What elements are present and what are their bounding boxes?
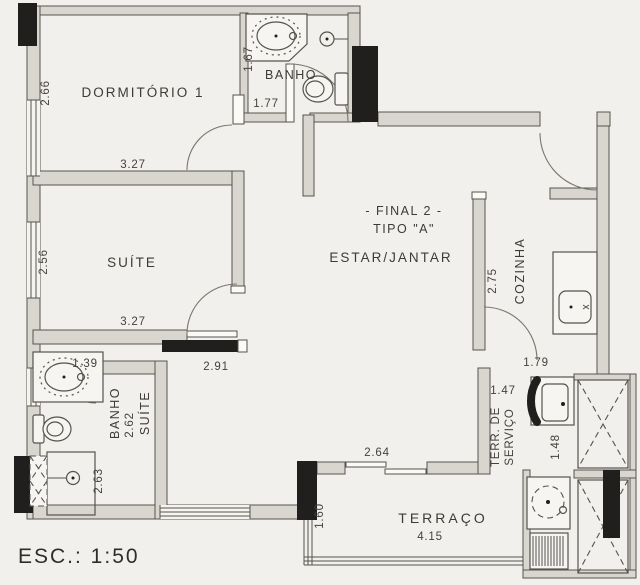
plan-subheading: TIPO "A"	[373, 222, 435, 236]
wall	[232, 171, 244, 287]
room-label-dormitorio1: DORMITÓRIO 1	[81, 85, 204, 100]
window-estar-bottom	[160, 505, 250, 519]
dim-banho-height: 1.67	[243, 46, 255, 72]
floor-plan: DORMITÓRIO 1 3.27 2.66 BANHO 1.67 1.77 S…	[0, 0, 640, 585]
room-label-servico-1: TERR. DE	[490, 407, 502, 467]
window-dormitorio1	[27, 100, 40, 176]
dim-terraco-width: 4.15	[417, 531, 443, 543]
room-label-servico-2: SERVIÇO	[504, 408, 516, 465]
kitchen-counter	[553, 252, 597, 334]
interior-walls	[33, 115, 486, 519]
dim-estar-height: 2.62	[124, 412, 136, 438]
wall	[33, 171, 235, 185]
shower-head-icon	[320, 32, 348, 46]
dim-estar-beam: 2.91	[203, 361, 229, 373]
washing-machine-icon	[527, 477, 570, 529]
column	[603, 470, 620, 538]
room-label-terraco: TERRAÇO	[398, 510, 487, 526]
wall-end-cap	[472, 192, 486, 199]
scale-label: ESC.: 1:50	[18, 545, 140, 568]
grille-icon	[530, 533, 568, 569]
beam-end-cap	[238, 340, 247, 352]
wall	[478, 368, 490, 474]
column	[352, 46, 378, 122]
wall-end-cap	[231, 286, 245, 293]
sliding-door-terraco	[346, 462, 426, 474]
column	[18, 3, 37, 46]
floor-plan-drawing: DORMITÓRIO 1 3.27 2.66 BANHO 1.67 1.77 S…	[0, 0, 640, 585]
dim-servico-shaft: 1.48	[550, 434, 562, 460]
dim-servico-width: 1.47	[490, 385, 516, 397]
room-label-banho-suite-1: BANHO	[108, 387, 122, 439]
dim-hall: 1.39	[72, 358, 98, 370]
banho-vanity	[246, 14, 307, 61]
terraco-parapet	[304, 520, 523, 565]
wall	[303, 115, 314, 196]
dim-terraco-door: 2.64	[364, 447, 390, 459]
wall	[597, 126, 609, 376]
beam	[162, 340, 246, 352]
dim-dormitorio1-width: 3.27	[120, 159, 146, 171]
dim-banho-suite-height: 2.63	[93, 468, 105, 494]
shaft-upper	[578, 380, 628, 468]
wall	[317, 462, 345, 474]
plan-heading: - FINAL 2 -	[365, 204, 442, 218]
wall	[378, 112, 540, 126]
wall	[27, 6, 360, 15]
wall	[597, 112, 610, 126]
wall	[240, 113, 290, 122]
toilet-icon-banho-suite	[33, 415, 71, 443]
dim-banho-width: 1.77	[253, 98, 279, 110]
door-dormitorio1	[187, 95, 244, 170]
room-label-suite: SUÍTE	[107, 255, 157, 270]
wall	[574, 374, 636, 380]
wall	[473, 193, 485, 350]
room-label-cozinha: COZINHA	[513, 238, 527, 305]
door-entry	[540, 133, 597, 190]
dim-suite-height: 2.56	[38, 249, 50, 275]
door-suite	[187, 284, 237, 337]
dim-suite-width: 3.27	[120, 316, 146, 328]
door-servico	[484, 307, 537, 360]
dim-dormitorio1-height: 2.66	[40, 80, 52, 106]
room-label-banho-suite-2: SUÍTE	[137, 391, 152, 435]
dim-terraco-height: 1.60	[314, 503, 326, 529]
dim-estar-wall: 2.75	[487, 268, 499, 294]
dim-servico-door: 1.79	[523, 357, 549, 369]
room-label-banho: BANHO	[265, 68, 317, 82]
wall	[427, 462, 478, 474]
room-label-estar: ESTAR/JANTAR	[329, 250, 452, 265]
laundry-tank-icon	[531, 377, 574, 425]
wall	[155, 361, 167, 519]
